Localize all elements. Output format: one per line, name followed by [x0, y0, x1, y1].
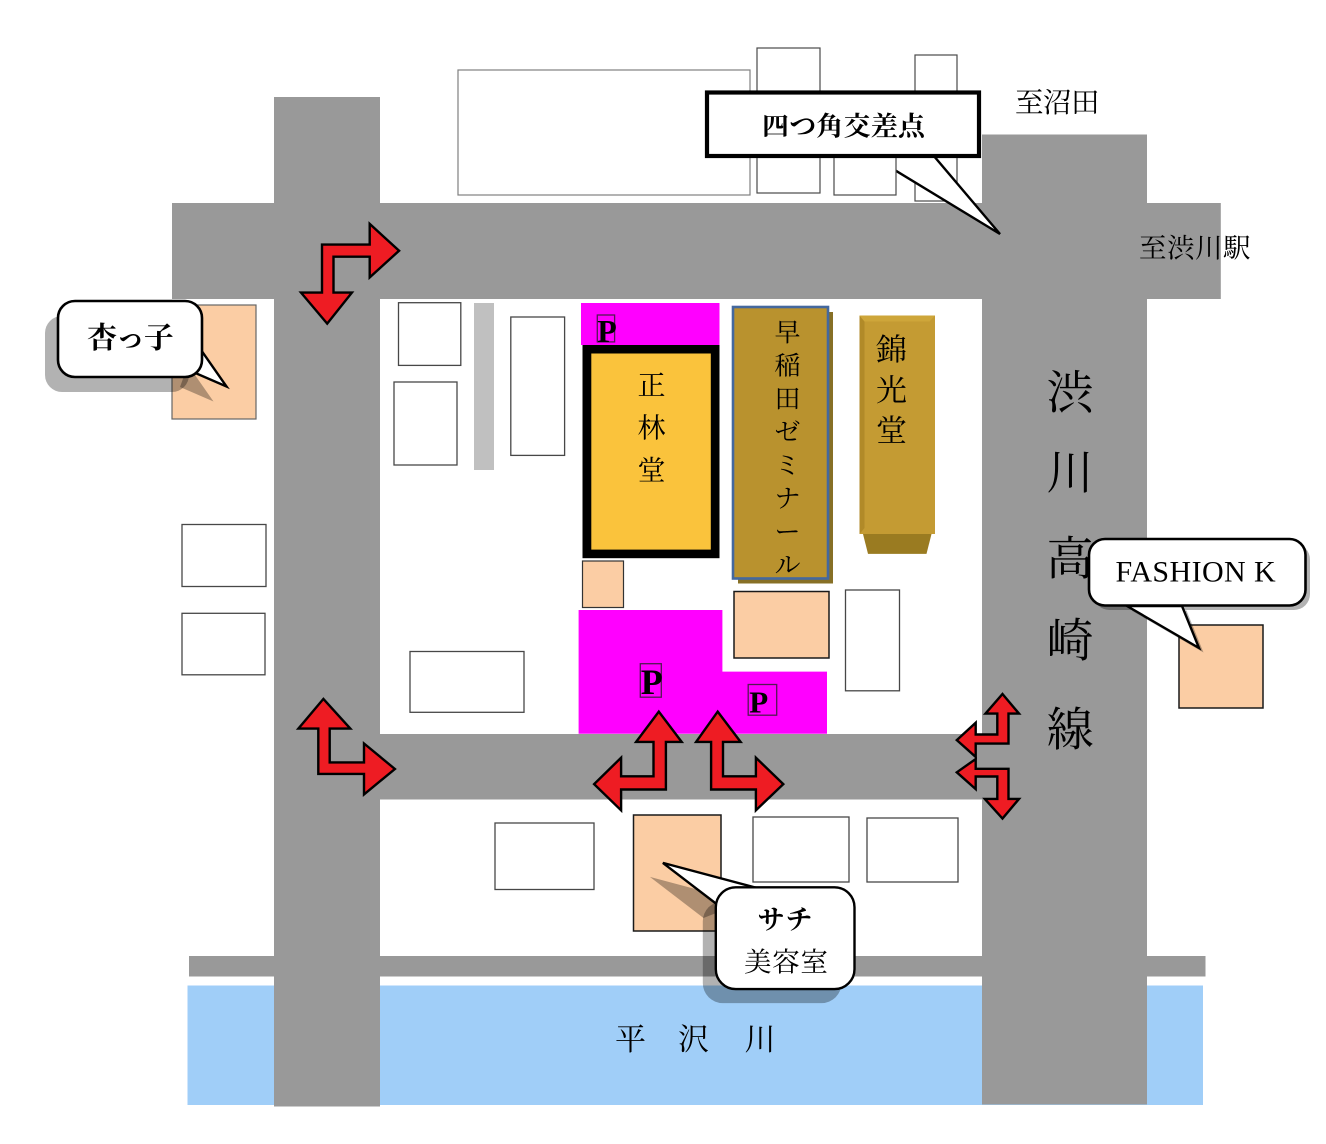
svg-text:P: P	[749, 684, 768, 719]
svg-text:P: P	[641, 662, 663, 702]
svg-text:FASHION K: FASHION K	[1116, 556, 1277, 589]
svg-text:P: P	[597, 313, 617, 349]
